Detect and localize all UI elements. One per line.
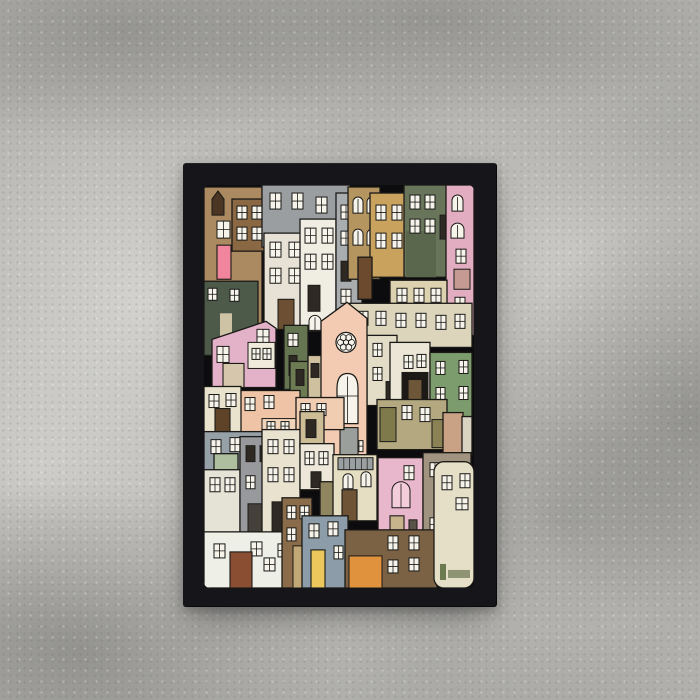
artwork-panel xyxy=(204,185,474,588)
picture-frame xyxy=(183,163,497,607)
artwork-svg xyxy=(204,185,474,588)
photo-scene: Framed folk-art wooden collage of stacke… xyxy=(0,0,700,700)
